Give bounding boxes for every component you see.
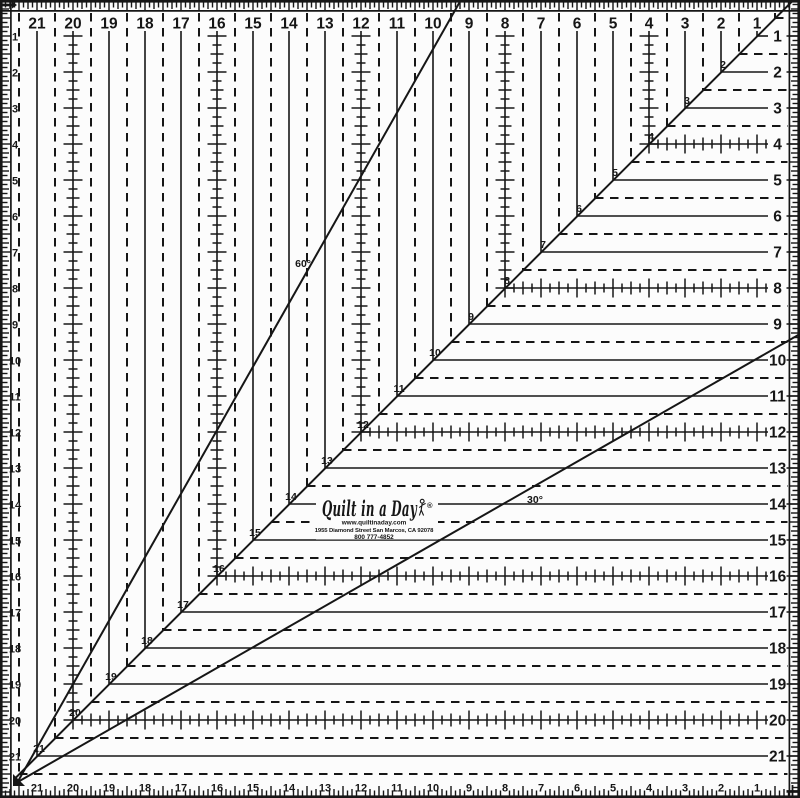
bottom-edge-number: 9 [466,782,472,794]
logo-block: Quilt in a Day ® www.quiltinaday.com 195… [315,494,438,541]
left-edge-number: 17 [9,608,21,620]
left-edge-number: 14 [9,500,22,512]
diagonal-point-label: 18 [141,635,153,647]
bottom-edge-number: 3 [682,782,688,794]
ruler-grid: 2120191817161514131211109876543211234567… [0,0,800,798]
right-edge-number: 12 [769,425,786,442]
left-edge-number: 12 [9,428,21,440]
bottom-edge-number: 14 [283,782,296,794]
diagonal-point-label: 6 [576,203,582,215]
diagonal-point-label: 21 [33,743,45,755]
diagonal-point-label: 17 [177,599,189,611]
top-edge-number: 17 [172,16,189,33]
top-edge-number: 5 [609,16,618,33]
bottom-edge-number: 1 [754,782,760,794]
top-edge-numbers: 212019181716151413121110987654321 [28,16,761,33]
bottom-edge-number: 4 [646,782,653,794]
right-edge-number: 8 [773,281,782,298]
left-edge-number: 19 [9,680,21,692]
bottom-edge-number: 2 [718,782,724,794]
right-edge-number: 6 [773,209,782,226]
top-edge-number: 10 [424,16,441,33]
top-edge-number: 16 [208,16,226,33]
bottom-edge-number: 16 [211,782,223,794]
top-edge-number: 20 [64,16,81,33]
top-edge-number: 3 [681,16,690,33]
bottom-edge-numbers: 212019181716151413121110987654321 [31,782,760,794]
diagonal-point-label: 9 [468,311,474,323]
left-edge-number: 9 [12,320,18,332]
logo-registered-mark: ® [427,501,433,510]
ruler-canvas: 2120191817161514131211109876543211234567… [0,0,800,798]
top-edge-number: 2 [717,16,726,33]
left-edge-number: 11 [9,392,21,404]
top-edge-number: 14 [280,16,298,33]
top-edge-number: 7 [537,16,546,33]
logo-phone: 800 777-4852 [354,534,394,541]
bottom-edge-number: 21 [31,782,43,794]
diagonal-point-label: 13 [321,455,333,467]
diagonal-point-label: 4 [648,131,654,143]
right-edge-number: 10 [769,353,786,370]
top-edge-number: 18 [136,16,154,33]
right-edge-number: 9 [773,317,782,334]
right-edge-number: 1 [773,29,782,46]
diagonal-point-label: 5 [612,167,618,179]
diagonal-point-label: 20 [69,707,81,719]
bottom-edge-number: 6 [574,782,580,794]
top-edge-number: 21 [28,16,46,33]
top-edge-number: 15 [244,16,262,33]
bottom-edge-number: 18 [139,782,151,794]
left-edge-number: 13 [9,464,21,476]
diagonal-point-label: 19 [105,671,117,683]
top-edge-number: 12 [352,16,369,33]
left-edge-number: 2 [12,68,18,80]
bottom-edge-number: 12 [355,782,367,794]
right-edge-number: 18 [769,641,787,658]
bottom-edge-number: 19 [103,782,115,794]
diagonal-point-label: 10 [429,347,441,359]
top-edge-number: 4 [645,16,654,33]
diagonal-point-label: 3 [684,95,690,107]
diagonal-point-label: 14 [285,491,297,503]
left-edge-number: 4 [12,140,19,152]
logo-brand-text: Quilt in a Day [322,496,418,521]
quilting-ruler: 2120191817161514131211109876543211234567… [0,0,800,798]
right-edge-number: 20 [769,713,786,730]
paper [0,0,800,798]
right-edge-number: 2 [773,65,782,82]
diagonal-point-label: 16 [213,563,225,575]
bottom-edge-number: 17 [175,782,187,794]
top-edge-number: 11 [389,16,406,33]
bottom-edge-number: 5 [610,782,616,794]
left-edge-number: 21 [9,752,21,764]
bottom-edge-number: 13 [319,782,331,794]
right-edge-number: 5 [773,173,782,190]
right-edge-number: 14 [769,497,787,514]
top-edge-number: 8 [501,16,510,33]
left-edge-number: 20 [9,716,21,728]
bottom-edge-number: 7 [538,782,544,794]
top-edge-number: 13 [316,16,334,33]
top-edge-number: 6 [573,16,582,33]
diagonal-point-label: 2 [720,59,726,71]
right-edge-number: 3 [773,101,782,118]
right-edge-number: 13 [769,461,787,478]
right-edge-number: 16 [769,569,787,586]
bottom-edge-number: 11 [391,782,403,794]
left-edge-number: 7 [12,248,18,260]
bottom-edge-number: 20 [67,782,79,794]
logo-website: www.quiltinaday.com [341,520,407,527]
right-edge-number: 7 [773,245,782,262]
right-edge-number: 4 [773,137,782,154]
diagonal-point-label: 8 [504,275,510,287]
top-edge-number: 1 [753,16,762,33]
left-edge-number: 16 [9,572,21,584]
diagonal-point-label: 12 [357,419,369,431]
right-edge-number: 11 [769,389,786,406]
right-edge-number: 21 [769,749,787,766]
bottom-edge-number: 15 [247,782,259,794]
left-edge-number: 1 [12,32,18,44]
left-edge-number: 10 [9,356,21,368]
diagonal-point-label: 15 [249,527,261,539]
left-edge-number: 18 [9,644,21,656]
left-edge-number: 15 [9,536,21,548]
bottom-edge-number: 8 [502,782,508,794]
top-edge-number: 19 [100,16,118,33]
diagonal-point-label: 7 [540,239,546,251]
right-edge-number: 17 [769,605,786,622]
diagonal-point-label: 11 [393,383,404,395]
thirty-degree-label: 30° [527,494,543,506]
left-edge-number: 8 [12,284,18,296]
bottom-edge-number: 10 [427,782,439,794]
top-edge-number: 9 [465,16,474,33]
left-edge-number: 3 [12,104,18,116]
right-edge-number: 19 [769,677,787,694]
left-edge-number: 5 [12,176,18,188]
right-edge-number: 15 [769,533,787,550]
sixty-degree-label: 60° [295,258,311,270]
left-edge-number: 6 [12,212,18,224]
